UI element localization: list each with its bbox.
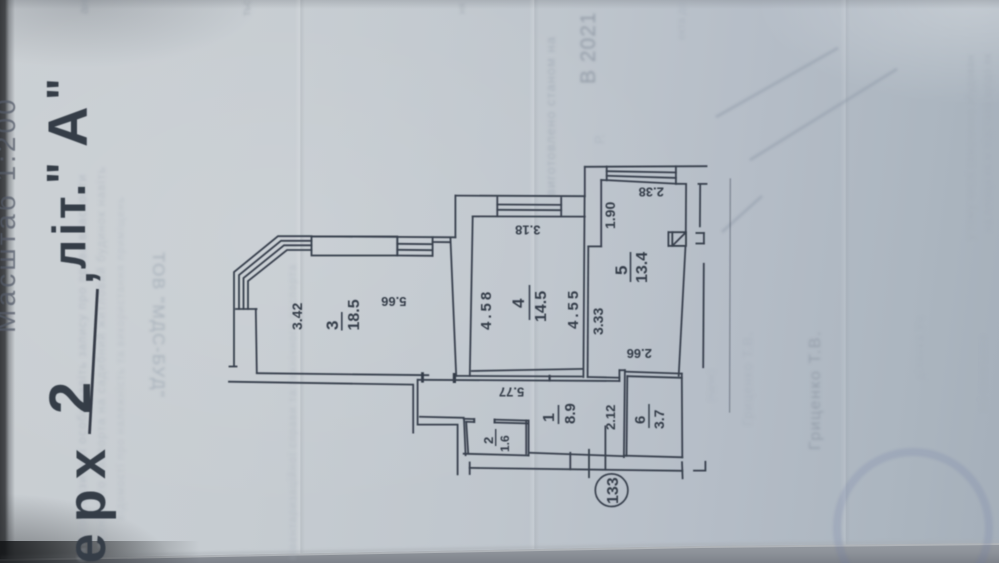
svg-text:3: 3 [323, 321, 342, 330]
svg-text:верх: верх [57, 438, 117, 563]
svg-text:1.90: 1.90 [602, 202, 618, 229]
svg-text:": " [37, 78, 89, 100]
svg-text:14.5: 14.5 [533, 291, 550, 322]
svg-text:Масштаб 1:200: Масштаб 1:200 [0, 96, 21, 333]
svg-text:133: 133 [605, 477, 622, 504]
svg-text:виготовлено станом на: виготовлено станом на [543, 36, 558, 196]
svg-text:5.77: 5.77 [499, 385, 524, 400]
svg-text:18.5: 18.5 [346, 299, 363, 330]
svg-text:А: А [36, 107, 99, 147]
svg-text:ділянка Уч: ділянка Уч [915, 316, 927, 380]
svg-text:2.38: 2.38 [639, 185, 664, 200]
svg-text:3.33: 3.33 [590, 308, 606, 335]
svg-text:4: 4 [509, 298, 528, 308]
svg-text:,: , [51, 271, 103, 284]
svg-text:1.6: 1.6 [498, 435, 512, 452]
svg-text:ня: ня [457, 3, 468, 14]
svg-text:2.12: 2.12 [603, 405, 618, 430]
svg-text:ани: ани [76, 0, 91, 14]
svg-text:1: 1 [541, 413, 558, 422]
svg-text:(підпис): (підпис) [706, 369, 716, 402]
svg-text:13.4: 13.4 [634, 252, 651, 283]
svg-text:Гриценко Т.В.: Гриценко Т.В. [807, 330, 824, 450]
svg-text:8.9: 8.9 [562, 403, 579, 424]
svg-text:2: 2 [481, 437, 496, 444]
svg-text:у тому числі самочинно збудова: у тому числі самочинно збудован [965, 55, 977, 240]
svg-text:4.58: 4.58 [478, 289, 495, 330]
svg-text:тьс: тьс [241, 0, 253, 16]
svg-text:5: 5 [612, 266, 631, 275]
svg-text:В 2021: В 2021 [577, 11, 600, 84]
svg-text:Гриценко Т.В.: Гриценко Т.В. [740, 331, 755, 426]
svg-text:6: 6 [632, 416, 649, 424]
svg-text:на площа кв.м підстава щодо як: на площа кв.м підстава щодо як [982, 53, 994, 232]
svg-text:": " [37, 162, 89, 184]
svg-text:екта до: екта до [676, 2, 688, 40]
svg-text:3.42: 3.42 [289, 303, 305, 330]
svg-text:ТОВ "МДС-БУД": ТОВ "МДС-БУД" [149, 252, 168, 398]
svg-text:літ.: літ. [43, 180, 95, 269]
svg-text:5.66: 5.66 [381, 294, 406, 309]
svg-text:які самочинно: які самочинно [978, 334, 989, 412]
svg-text:4.55: 4.55 [565, 288, 582, 329]
svg-text:3.7: 3.7 [651, 409, 667, 429]
svg-text:Р.: Р. [592, 134, 607, 144]
svg-text:3.18: 3.18 [515, 223, 540, 238]
svg-text:2.66: 2.66 [627, 346, 652, 361]
